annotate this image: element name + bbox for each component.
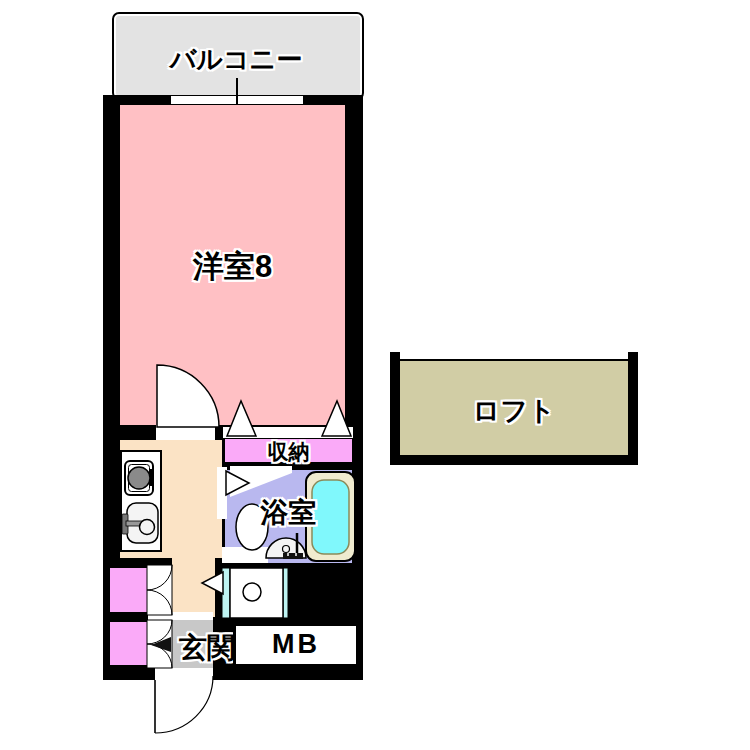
loft-wall-bottom (390, 455, 638, 465)
balcony-window (170, 95, 304, 105)
western-room-label: 洋室8 (120, 246, 345, 288)
meter-box-label: MB (233, 629, 359, 660)
loft-wall-left (390, 352, 400, 465)
entrance-step (148, 612, 213, 620)
room-door-opening (156, 425, 215, 440)
loft-wall-right (628, 352, 638, 465)
kitchen-counter (120, 450, 162, 552)
loft-label: ロフト (400, 393, 628, 429)
floor-plan: バルコニー 洋室8 収納 玄関 MB ロフト (0, 0, 750, 750)
cabinet-upper (110, 568, 147, 612)
cabinet-lower (110, 622, 147, 665)
bathroom-label: 浴室 (225, 494, 352, 532)
entrance-door-opening (155, 668, 213, 680)
balcony-label: バルコニー (112, 42, 360, 77)
entrance-door-swing-icon (155, 676, 213, 733)
hallway-lower-area (172, 558, 215, 617)
storage-label: 収納 (225, 438, 352, 466)
